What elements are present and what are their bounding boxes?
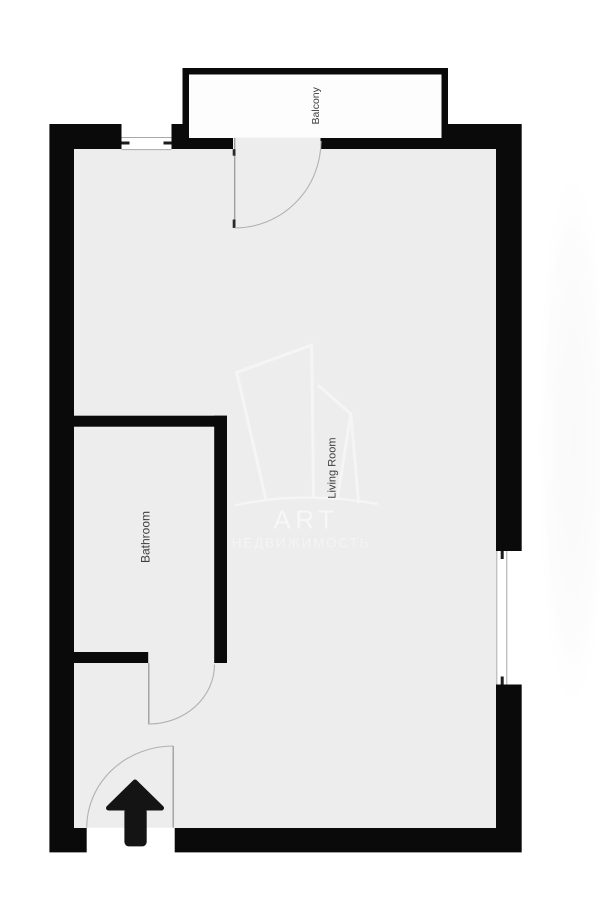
svg-text:Living Room: Living Room [327,437,339,498]
svg-text:Balcony: Balcony [310,86,322,124]
svg-text:ART: ART [273,505,338,535]
svg-text:НЕДВИЖИМОСТЬ: НЕДВИЖИМОСТЬ [232,536,371,551]
svg-text:Bathroom: Bathroom [138,511,152,563]
